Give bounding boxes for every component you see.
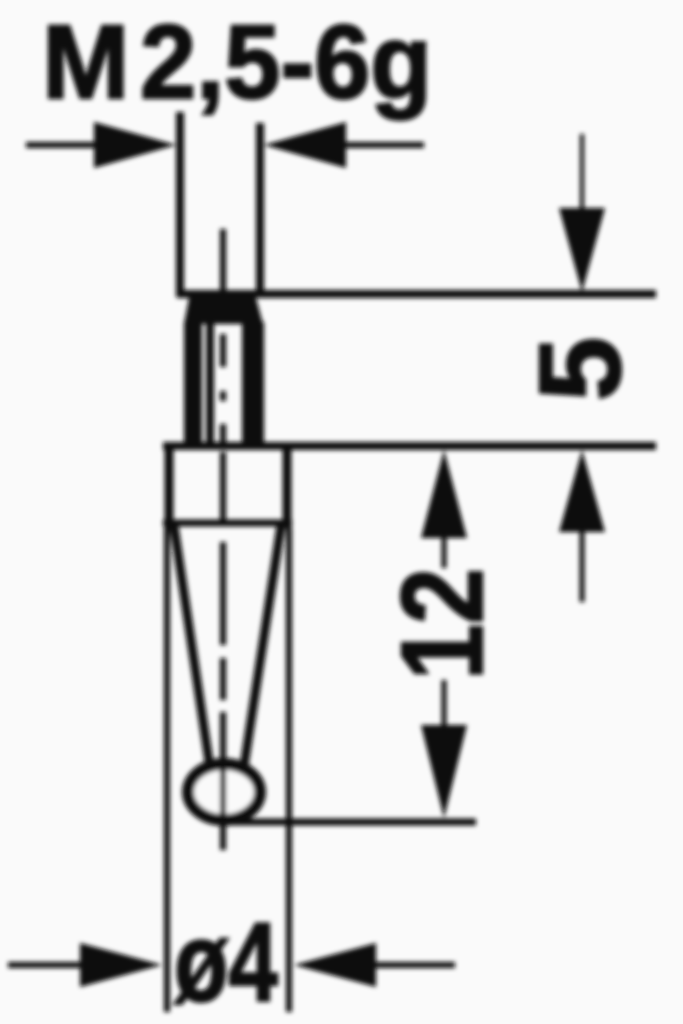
svg-text:2,5-6g: 2,5-6g <box>140 4 432 121</box>
svg-text:5: 5 <box>515 337 645 402</box>
svg-text:12: 12 <box>377 568 507 680</box>
svg-text:ø4: ø4 <box>174 900 278 1024</box>
svg-text:M: M <box>42 4 129 121</box>
